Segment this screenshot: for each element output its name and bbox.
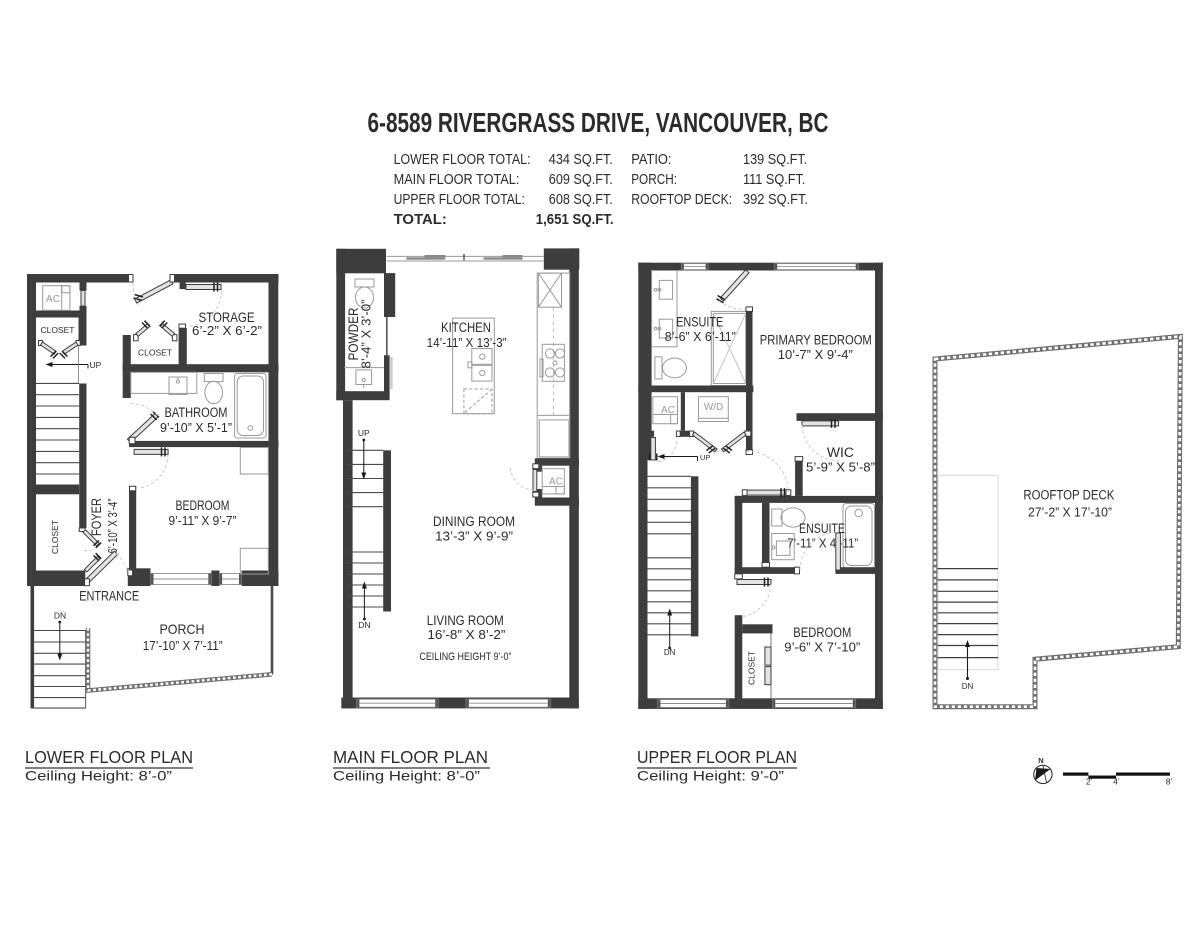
svg-text:8’-4” X 3’-0”: 8’-4” X 3’-0” — [359, 300, 374, 369]
svg-text:FOYER: FOYER — [89, 498, 104, 536]
svg-text:W/D: W/D — [704, 402, 723, 413]
svg-text:LOWER FLOOR TOTAL:: LOWER FLOOR TOTAL: — [394, 152, 531, 168]
svg-text:AC: AC — [46, 294, 60, 305]
svg-text:CLOSET: CLOSET — [747, 651, 757, 685]
svg-text:AC: AC — [549, 477, 563, 488]
svg-text:608 SQ.FT.: 608 SQ.FT. — [549, 192, 613, 208]
svg-text:CLOSET: CLOSET — [138, 348, 172, 358]
svg-text:27’-2” X 17’-10”: 27’-2” X 17’-10” — [1028, 505, 1112, 520]
svg-text:TOTAL:: TOTAL: — [394, 212, 447, 228]
svg-text:1,651 SQ.FT.: 1,651 SQ.FT. — [536, 212, 614, 228]
svg-text:434 SQ.FT.: 434 SQ.FT. — [549, 152, 613, 168]
svg-text:DN: DN — [664, 648, 676, 657]
svg-text:ENTRANCE: ENTRANCE — [79, 588, 139, 604]
svg-text:7’-11” X 4’-11”: 7’-11” X 4’-11” — [787, 536, 858, 551]
svg-text:6’-10” X 3’-4”: 6’-10” X 3’-4” — [105, 499, 120, 554]
svg-text:ROOFTOP DECK: ROOFTOP DECK — [1023, 488, 1114, 503]
svg-text:UPPER FLOOR PLAN: UPPER FLOOR PLAN — [637, 747, 797, 767]
svg-text:6-8589 RIVERGRASS DRIVE, VANCO: 6-8589 RIVERGRASS DRIVE, VANCOUVER, BC — [368, 107, 829, 138]
svg-text:UP: UP — [700, 453, 710, 462]
svg-text:BEDROOM: BEDROOM — [793, 625, 851, 640]
svg-text:LOWER FLOOR PLAN: LOWER FLOOR PLAN — [25, 747, 193, 767]
svg-text:DN: DN — [962, 682, 974, 691]
svg-text:UP: UP — [90, 360, 102, 370]
svg-text:PATIO:: PATIO: — [631, 152, 671, 168]
svg-text:14’-11” X 13’-3”: 14’-11” X 13’-3” — [427, 335, 507, 350]
svg-text:UPPER FLOOR TOTAL:: UPPER FLOOR TOTAL: — [394, 192, 525, 208]
svg-text:UP: UP — [358, 428, 370, 438]
svg-text:4’: 4’ — [1113, 777, 1120, 787]
svg-text:139 SQ.FT.: 139 SQ.FT. — [743, 152, 807, 168]
svg-text:DN: DN — [54, 611, 66, 621]
svg-text:5’-9” X 5’-8”: 5’-9” X 5’-8” — [806, 460, 875, 475]
svg-text:AC: AC — [661, 405, 675, 416]
svg-text:9’-10” X 5’-1”: 9’-10” X 5’-1” — [160, 420, 232, 435]
svg-text:BATHROOM: BATHROOM — [165, 405, 228, 420]
svg-text:2’: 2’ — [1086, 777, 1093, 787]
svg-text:N: N — [1038, 756, 1043, 765]
svg-text:8’-6” X 6’-11”: 8’-6” X 6’-11” — [665, 329, 736, 344]
svg-text:ENSUITE: ENSUITE — [676, 315, 723, 330]
svg-text:CEILING HEIGHT 9’-0”: CEILING HEIGHT 9’-0” — [419, 651, 511, 663]
svg-text:609 SQ.FT.: 609 SQ.FT. — [549, 172, 613, 188]
svg-text:PRIMARY BEDROOM: PRIMARY BEDROOM — [760, 333, 872, 348]
svg-text:PORCH:: PORCH: — [631, 172, 677, 188]
svg-text:BEDROOM: BEDROOM — [176, 498, 230, 513]
svg-text:Ceiling Height: 8’-0”: Ceiling Height: 8’-0” — [333, 768, 480, 784]
svg-text:Ceiling Height: 9’-0”: Ceiling Height: 9’-0” — [637, 768, 784, 784]
svg-text:17’-10” X 7’-11”: 17’-10” X 7’-11” — [143, 638, 223, 653]
svg-text:PORCH: PORCH — [160, 621, 205, 637]
svg-text:MAIN FLOOR PLAN: MAIN FLOOR PLAN — [333, 747, 488, 767]
svg-text:111 SQ.FT.: 111 SQ.FT. — [743, 172, 805, 188]
svg-text:DINING ROOM: DINING ROOM — [433, 514, 515, 529]
svg-text:CLOSET: CLOSET — [40, 325, 74, 335]
svg-text:LIVING ROOM: LIVING ROOM — [427, 613, 504, 628]
svg-text:9’-6” X 7’-10”: 9’-6” X 7’-10” — [784, 640, 860, 655]
svg-text:KITCHEN: KITCHEN — [441, 320, 491, 335]
svg-text:10’-7” X 9’-4”: 10’-7” X 9’-4” — [778, 347, 853, 362]
svg-text:9’-11” X 9’-7”: 9’-11” X 9’-7” — [169, 513, 237, 528]
svg-text:8’: 8’ — [1166, 777, 1173, 787]
svg-text:13’-3” X 9’-9”: 13’-3” X 9’-9” — [435, 529, 513, 544]
svg-text:WIC: WIC — [827, 445, 854, 460]
svg-text:Ceiling Height: 8’-0”: Ceiling Height: 8’-0” — [25, 768, 172, 784]
svg-text:MAIN FLOOR TOTAL:: MAIN FLOOR TOTAL: — [394, 172, 520, 188]
svg-text:ROOFTOP DECK:: ROOFTOP DECK: — [631, 192, 732, 208]
svg-text:392 SQ.FT.: 392 SQ.FT. — [743, 192, 808, 208]
svg-text:6’-2” X 6’-2”: 6’-2” X 6’-2” — [192, 323, 262, 338]
svg-text:DN: DN — [358, 620, 370, 630]
svg-text:CLOSET: CLOSET — [50, 520, 60, 554]
svg-text:16’-8” X 8’-2”: 16’-8” X 8’-2” — [427, 627, 505, 642]
